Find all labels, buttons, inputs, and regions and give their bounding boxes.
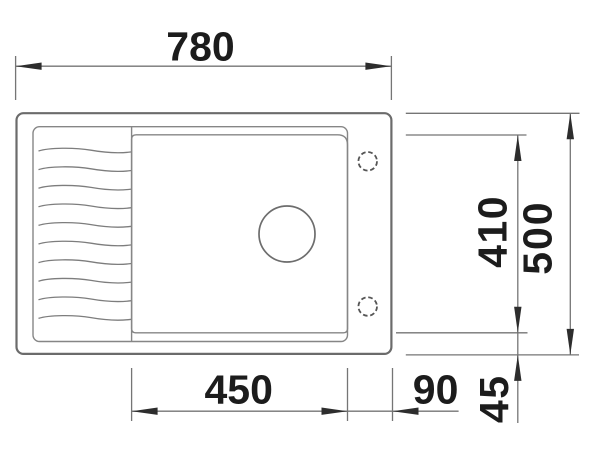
svg-text:780: 780	[166, 24, 234, 70]
svg-text:450: 450	[204, 366, 272, 412]
svg-text:45: 45	[471, 374, 517, 423]
svg-text:90: 90	[413, 366, 459, 412]
svg-text:500: 500	[515, 200, 561, 274]
svg-text:410: 410	[470, 195, 516, 268]
